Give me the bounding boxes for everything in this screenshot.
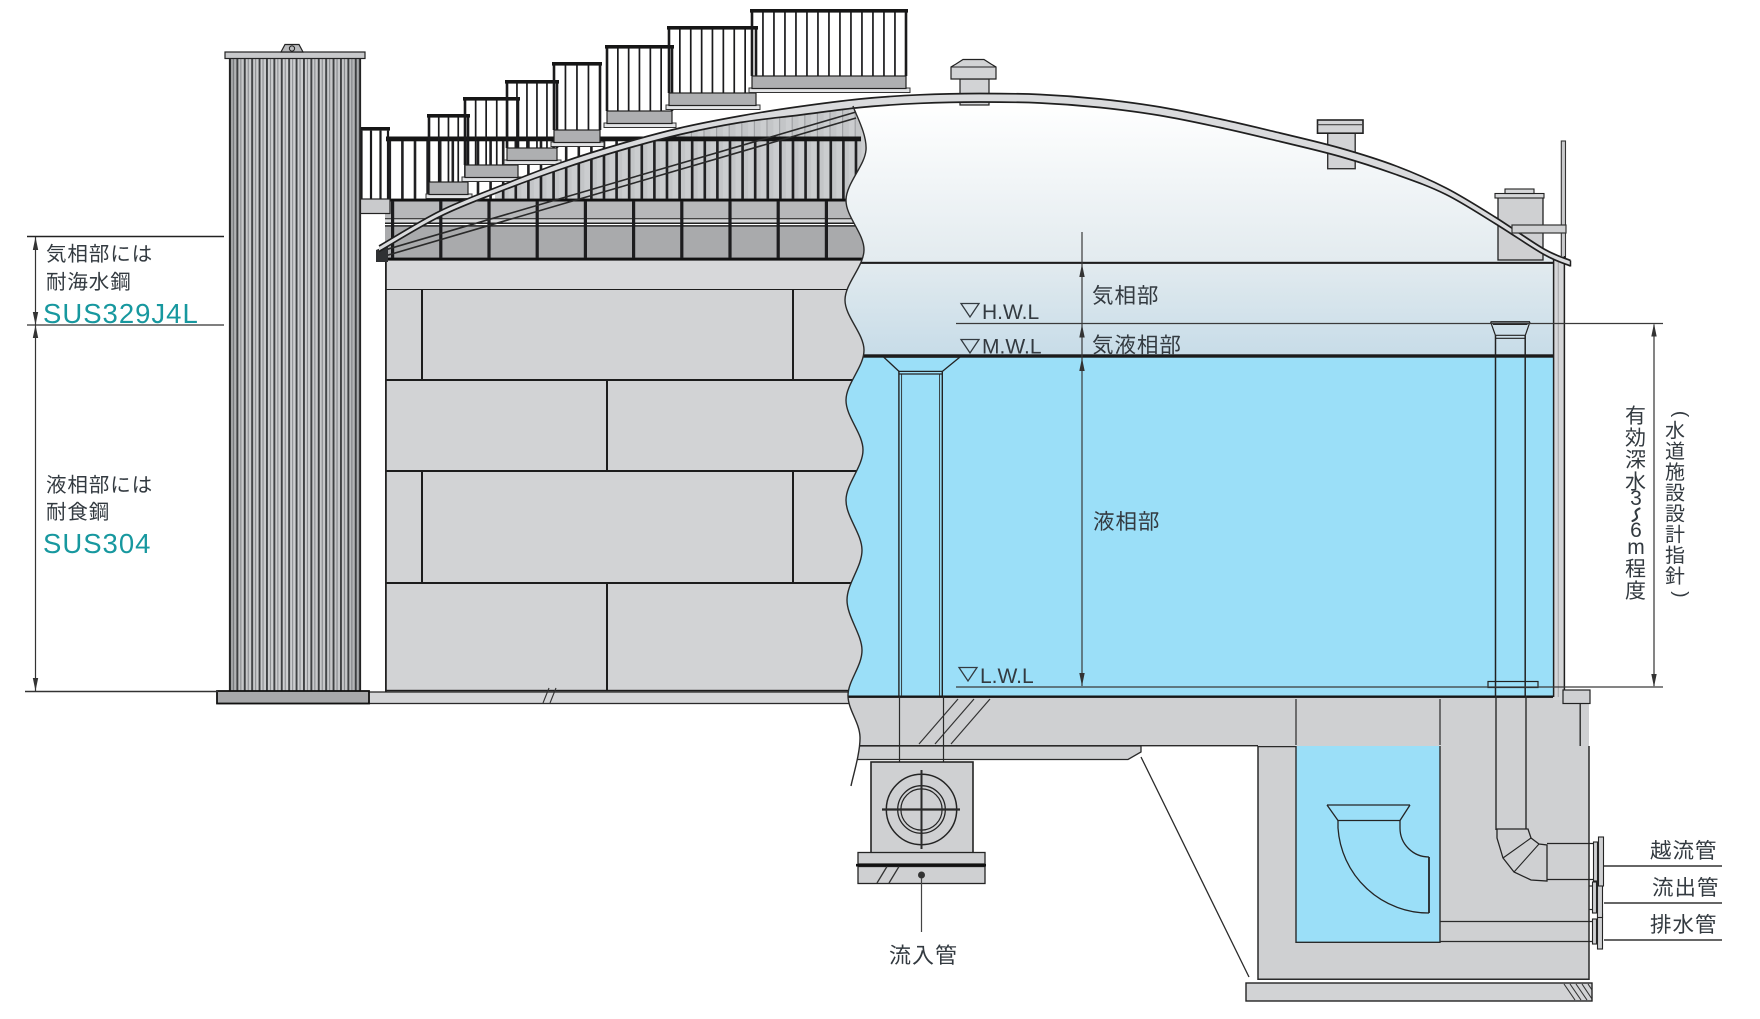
svg-text:L.W.L: L.W.L (980, 665, 1034, 688)
svg-text:H.W.L: H.W.L (982, 301, 1039, 324)
svg-text:3: 3 (1630, 487, 1642, 510)
svg-text:SUS304: SUS304 (43, 528, 151, 559)
svg-text:m: m (1627, 536, 1645, 559)
svg-text:(: ( (1670, 411, 1691, 418)
svg-text:): ) (1670, 591, 1691, 597)
svg-text:M.W.L: M.W.L (982, 336, 1042, 359)
svg-text:SUS329J4L: SUS329J4L (43, 298, 199, 329)
